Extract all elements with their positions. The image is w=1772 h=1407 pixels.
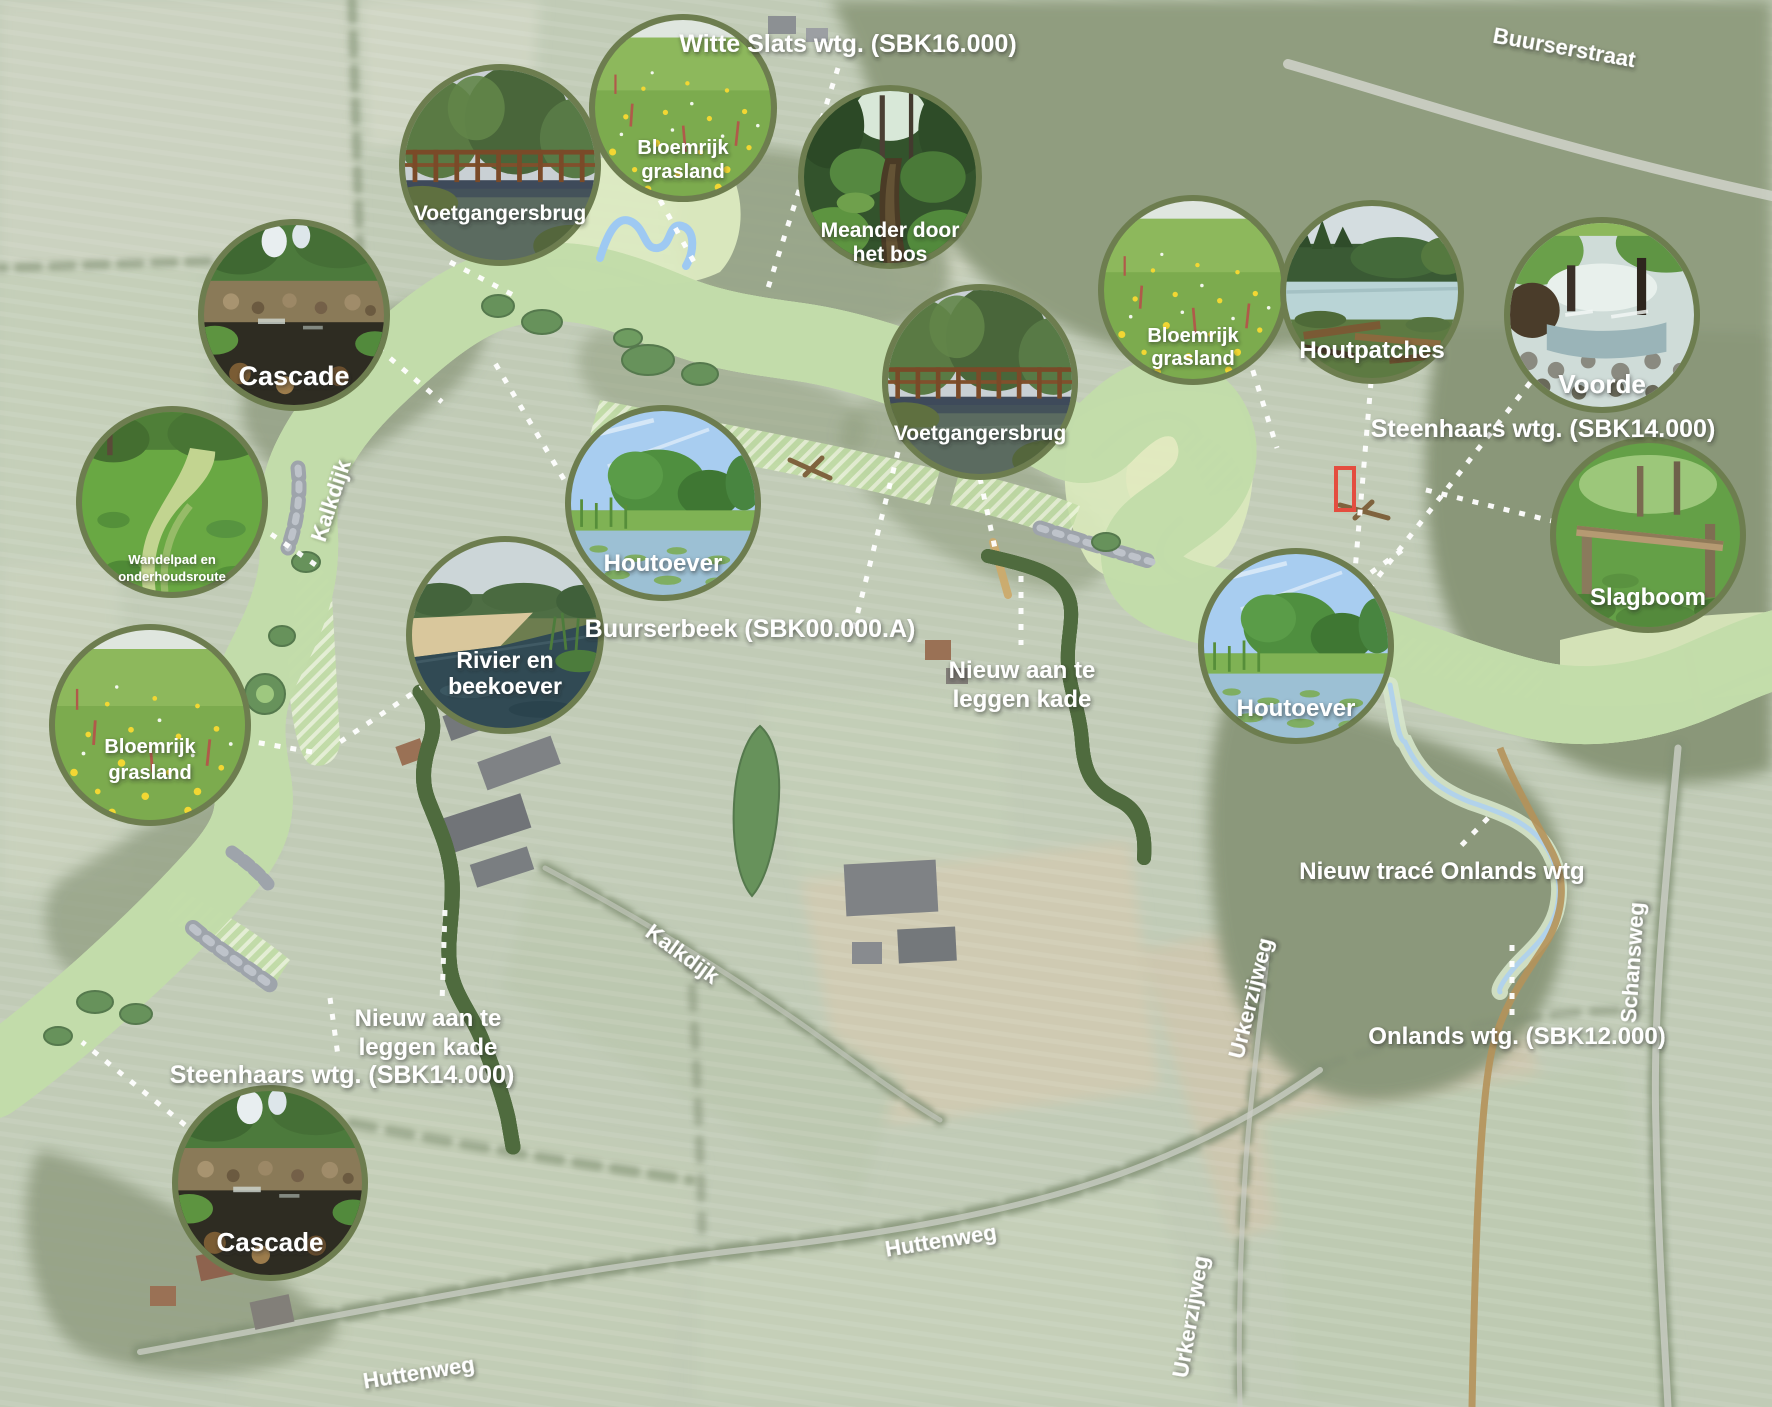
inset-label: Voetgangersbrug bbox=[414, 202, 586, 225]
inset-label: het bos bbox=[853, 243, 928, 266]
inset-houtoever-mid[interactable]: Houtoever bbox=[565, 405, 762, 601]
inset-label: Bloemrijk bbox=[104, 736, 196, 758]
inset-label: Slagboom bbox=[1590, 584, 1706, 611]
inset-label: Voetgangersbrug bbox=[894, 422, 1066, 445]
annotation-line: Onlands wtg. (SBK12.000) bbox=[1368, 1023, 1665, 1050]
inset-label: Cascade bbox=[238, 361, 349, 391]
inset-houtoever-e[interactable]: Houtoever bbox=[1198, 548, 1395, 744]
inset-label: Houtpatches bbox=[1299, 337, 1444, 364]
inset-bloemrijk-grasland-w[interactable]: Bloemrijkgrasland bbox=[49, 624, 251, 826]
inset-label: Cascade bbox=[217, 1227, 324, 1257]
annotation-steenhaars-wtg-east: Steenhaars wtg. (SBK14.000) bbox=[1371, 415, 1716, 443]
inset-bloemrijk-grasland-e[interactable]: Bloemrijkgrasland bbox=[1098, 195, 1288, 385]
annotation-line: Steenhaars wtg. (SBK14.000) bbox=[1371, 415, 1716, 443]
annotation-line: Nieuw aan te bbox=[355, 1005, 502, 1032]
annotation-line: Nieuw tracé Onlands wtg bbox=[1299, 858, 1584, 885]
inset-label: Bloemrijk bbox=[637, 137, 729, 159]
inset-label: grasland bbox=[1151, 348, 1234, 370]
annotation-line: leggen kade bbox=[359, 1034, 498, 1061]
meadow-photo bbox=[55, 630, 245, 820]
annotation-nieuw-trace-onlands: Nieuw tracé Onlands wtg bbox=[1299, 858, 1584, 885]
inset-label: Voorde bbox=[1558, 369, 1646, 399]
annotation-witte-slats-wtg: Witte Slats wtg. (SBK16.000) bbox=[679, 30, 1016, 58]
inset-label: beekoever bbox=[448, 673, 562, 699]
inset-label: grasland bbox=[641, 161, 724, 183]
annotation-line: Witte Slats wtg. (SBK16.000) bbox=[679, 30, 1016, 58]
inset-label: Meander door bbox=[821, 219, 960, 242]
plan-map: VoetgangersbrugBloemrijkgraslandMeander … bbox=[0, 0, 1772, 1407]
annotation-line: leggen kade bbox=[953, 686, 1092, 713]
inset-label: Wandelpad en bbox=[128, 552, 216, 567]
annotation-line: Steenhaars wtg. (SBK14.000) bbox=[170, 1061, 515, 1089]
inset-label: onderhoudsroute bbox=[118, 569, 226, 584]
annotation-onlands-wtg: Onlands wtg. (SBK12.000) bbox=[1368, 1023, 1665, 1050]
annotation-line: Nieuw aan te bbox=[949, 657, 1096, 684]
annotation-line: Buurserbeek (SBK00.000.A) bbox=[585, 615, 916, 643]
inset-label: grasland bbox=[108, 762, 191, 784]
inset-wandelpad[interactable]: Wandelpad enonderhoudsroute bbox=[76, 406, 268, 598]
inset-label: Rivier en bbox=[456, 647, 553, 673]
inset-label: Houtoever bbox=[1237, 695, 1356, 722]
inset-label: Bloemrijk bbox=[1147, 325, 1239, 347]
annotation-steenhaars-wtg-west: Steenhaars wtg. (SBK14.000) bbox=[170, 1061, 515, 1089]
inset-label: Houtoever bbox=[604, 550, 723, 577]
map-canvas: VoetgangersbrugBloemrijkgraslandMeander … bbox=[0, 0, 1772, 1407]
annotation-buurserbeek: Buurserbeek (SBK00.000.A) bbox=[585, 615, 916, 643]
